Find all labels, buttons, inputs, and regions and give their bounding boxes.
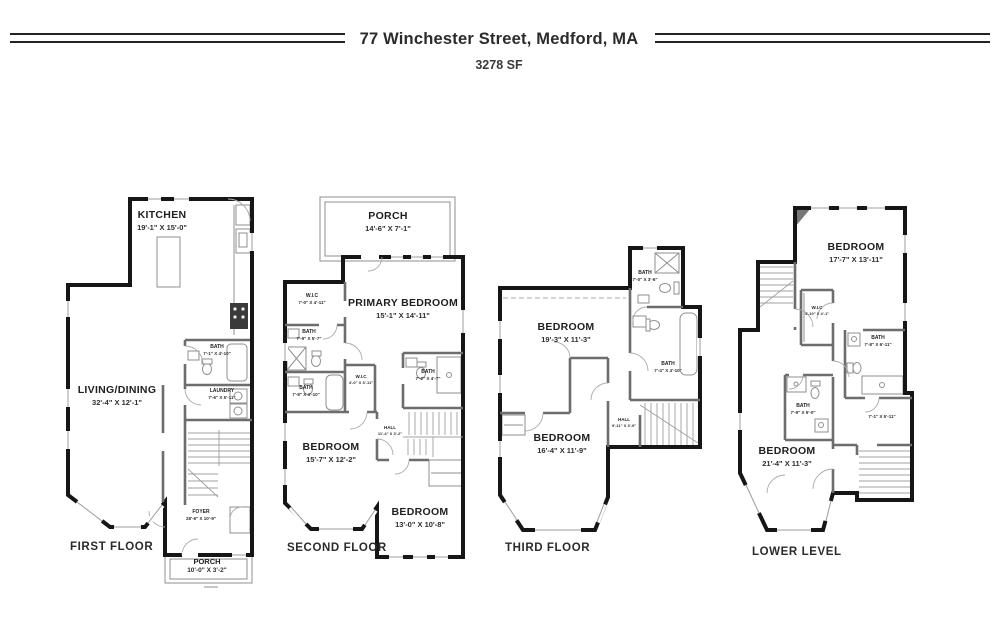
room-label-bedroom2-ll: BEDROOM 21'-4" X 11'-3" (759, 445, 816, 468)
room-label-porch-f2: PORCH 14'-6" X 7'-1" (365, 210, 411, 233)
room-label-laundry: LAUNDRY 7'-6" X 5'-11" (208, 388, 235, 400)
room-label-living-dining: LIVING/DINING 32'-4" X 12'-1" (78, 384, 157, 407)
room-label-bedroom2-f3: BEDROOM 16'-4" X 11'-9" (534, 432, 591, 455)
page-title: 77 Winchester Street, Medford, MA (0, 30, 998, 49)
floor-name-second: SECOND FLOOR (287, 542, 387, 554)
room-label-bedroom2-f2: BEDROOM 13'-0" X 10'-8" (392, 506, 449, 529)
room-label-foyer: FOYER 28'-6" X 10'-9" (186, 509, 216, 521)
room-label-wic-ll: W.I.C 4'-10" X 4'-1" (805, 305, 829, 316)
room-label-porch-f1: PORCH 10'-0" X 3'-2" (187, 557, 227, 575)
room-label-bath1-ll: BATH 7'-8" X 6'-11" (864, 335, 891, 347)
third-floor-plan-drawing (493, 243, 708, 568)
floor-name-lower: LOWER LEVEL (752, 546, 842, 558)
room-label-bedroom1-f2: BEDROOM 15'-7" X 12'-2" (303, 441, 360, 464)
room-label-hall-f3: HALL 9'-11" X 3'-9" (612, 417, 636, 428)
room-label-kitchen: KITCHEN 19'-1" X 15'-0" (137, 209, 187, 232)
room-label-wic1-f2: W.I.C 7'-0" X 4'-11" (298, 293, 325, 305)
floor-plan-sheet: 77 Winchester Street, Medford, MA 3278 S… (0, 0, 998, 619)
room-label-bath1-f2: BATH 7'-9" X 5'-7" (297, 329, 322, 341)
room-label-unnamed-ll: 7'-1" X 5'-11" (868, 414, 895, 420)
room-label-bedroom1-ll: BEDROOM 17'-7" X 13'-11" (828, 241, 885, 264)
floor-name-third: THIRD FLOOR (505, 542, 590, 554)
room-label-primary-bedroom: PRIMARY BEDROOM 15'-1" X 14'-11" (348, 297, 458, 320)
room-label-wic2-f2: W.I.C 4'-0" X 3'-11" (349, 374, 373, 385)
room-label-bath2-ll: BATH 7'-9" X 5'-0" (791, 403, 816, 415)
room-label-bedroom1-f3: BEDROOM 19'-3" X 11'-3" (538, 321, 595, 344)
room-label-bath-f1: BATH 7'-1" X 4'-10" (203, 344, 230, 356)
page-subtitle: 3278 SF (0, 58, 998, 72)
room-label-bath2-f2: BATH 7'-8" X 4'-10" (292, 385, 319, 397)
room-label-bath2-f3: BATH 7'-4" X 4'-10" (654, 361, 681, 373)
floor-name-first: FIRST FLOOR (70, 541, 153, 553)
room-label-hall-f2: HALL 11'-4" X 3'-2" (378, 425, 402, 436)
room-label-bath3-f2: BATH 7'-2" X 4'-7" (416, 369, 441, 381)
room-label-bath1-f3: BATH 7'-0" X 3'-6" (633, 270, 658, 282)
